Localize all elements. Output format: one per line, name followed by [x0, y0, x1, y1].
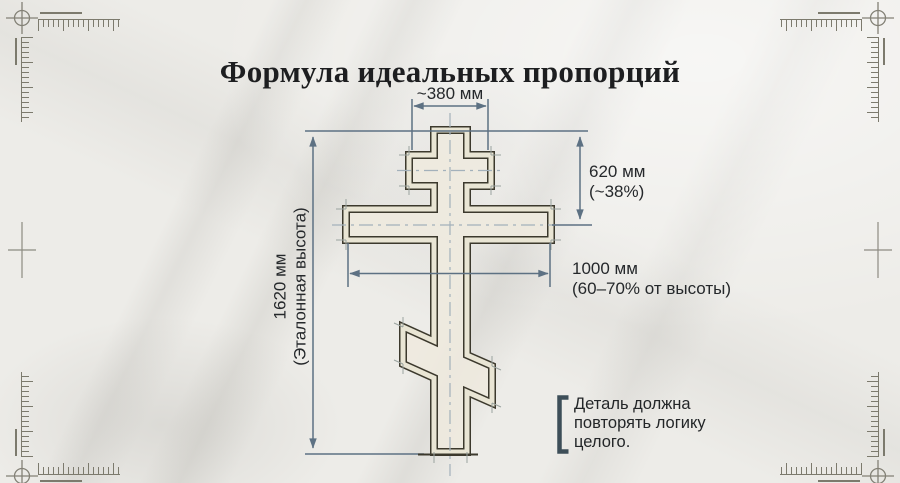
dim-note: (60–70% от высоты): [572, 279, 731, 299]
dim-label-upper-height: 620 мм (~38%): [589, 162, 645, 201]
dim-value: 620 мм: [589, 162, 645, 182]
dim-label-total-height: 1620 мм (Эталонная высота): [271, 187, 310, 387]
dim-label-crossbar-width: 1000 мм (60–70% от высоты): [572, 259, 731, 298]
callout-text: Деталь должна повторять логику целого.: [574, 395, 724, 452]
blueprint-canvas: Формула идеальных пропорций: [0, 0, 900, 483]
dim-value: 1620 мм: [271, 187, 291, 387]
orthodox-cross-outline: [346, 130, 551, 452]
dim-label-top-width: ~380 мм: [380, 84, 520, 104]
dim-note: (~38%): [589, 182, 645, 202]
dim-note: (Эталонная высота): [290, 187, 310, 387]
dim-value: ~380 мм: [380, 84, 520, 104]
dim-value: 1000 мм: [572, 259, 731, 279]
callout-bracket: [560, 398, 569, 452]
